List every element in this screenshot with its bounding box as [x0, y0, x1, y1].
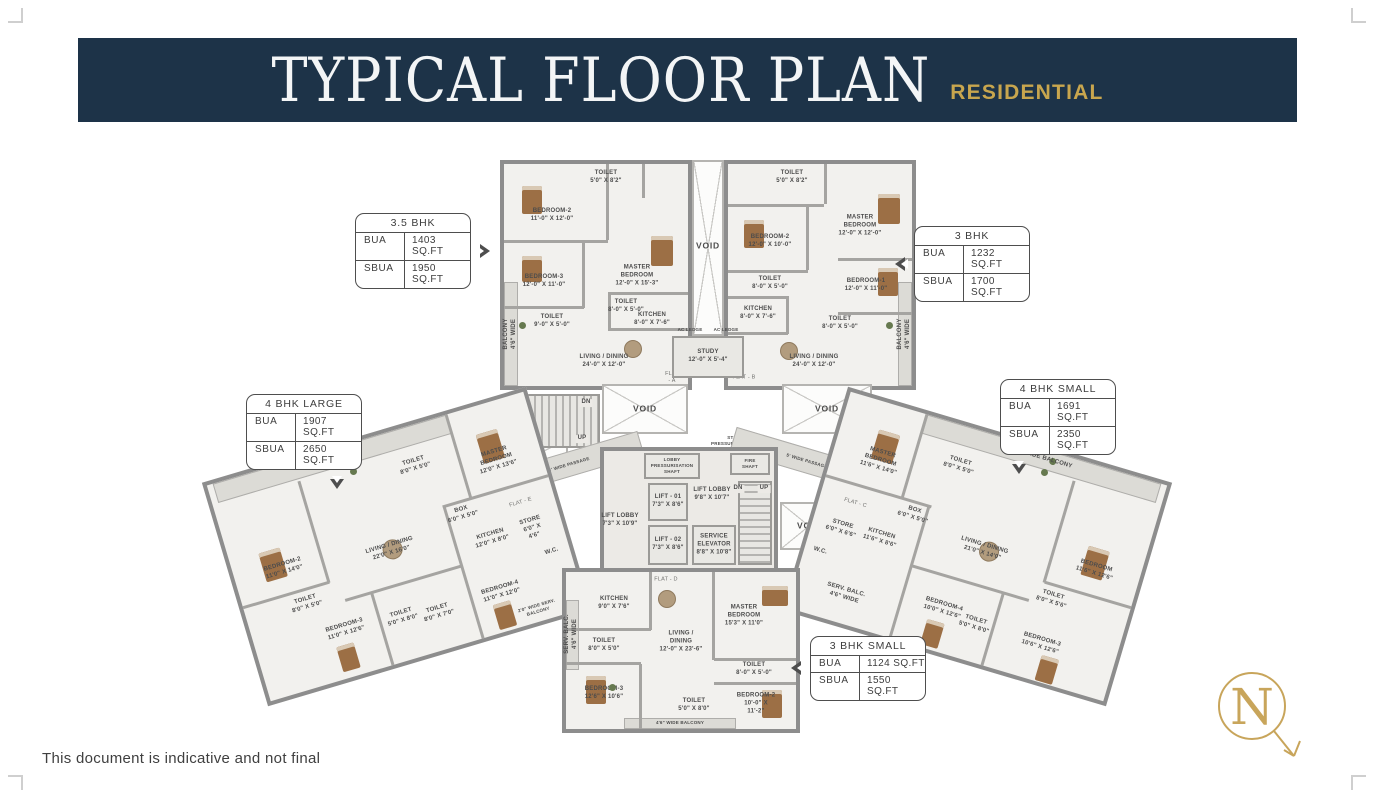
unit-type-title: 4 BHK LARGE: [247, 395, 361, 413]
room-label-master-bedroom: MASTER BEDROOM 12'-0" X 12'-0": [839, 214, 882, 237]
room-label-wc: W.C.: [812, 546, 827, 557]
partition-wall: [504, 240, 608, 243]
passage-label: 5' WIDE PASSAGE: [786, 452, 828, 470]
unit-type-title: 3 BHK: [915, 227, 1029, 245]
bua-row: BUA 1691 SQ.FT: [1001, 398, 1115, 426]
room-label-toilet: TOILET 9'-0" X 5'-0": [534, 314, 570, 330]
partition-wall: [712, 572, 715, 660]
crop-mark-top-right: [1351, 8, 1366, 23]
stair-up-label: UP: [576, 435, 589, 443]
partition-wall: [728, 204, 824, 207]
room-label-lift-lobby2: LIFT LOBBY 7'3" X 10'9": [601, 513, 638, 529]
sbua-label: SBUA: [811, 673, 860, 700]
crop-mark-bottom-left: [8, 775, 23, 790]
unit-type-title: 3.5 BHK: [356, 214, 470, 232]
room-label-toilet: TOILET 5'0" X 8'2": [776, 170, 807, 186]
crop-mark-bottom-right: [1351, 775, 1366, 790]
sbua-row: SBUA 1550 SQ.FT: [811, 672, 925, 700]
partition-wall: [582, 240, 585, 308]
room-label-bedroom2: BEDROOM-2 12'-0" X 10'-0": [749, 234, 792, 250]
room-label-bedroom4: BEDROOM-4 10'0" X 12'6": [922, 596, 963, 622]
room-label-kitchen: KITCHEN 12'0" X 8'0": [473, 526, 511, 551]
room-label-serv-balc: SERV. BALC. 4'6" WIDE: [564, 614, 580, 654]
sbua-value: 1950 SQ.FT: [405, 261, 470, 288]
room-label-toilet: TOILET 8'0" X 5'0": [397, 454, 432, 478]
partition-wall: [345, 564, 463, 601]
void-label: VOID: [696, 240, 720, 251]
sbua-label: SBUA: [915, 274, 964, 301]
unit-flat-b: TOILET 5'0" X 8'2" BEDROOM-2 12'-0" X 10…: [724, 160, 916, 390]
unit-type-title: 4 BHK SMALL: [1001, 380, 1115, 398]
central-core: LOBBY PRESSURISATION SHAFT LIFT - 01 7'3…: [600, 447, 778, 575]
bua-label: BUA: [1001, 399, 1050, 426]
sbua-label: SBUA: [1001, 427, 1050, 454]
room-label-master-bedroom: MASTER BEDROOM 15'3" X 11'0": [725, 604, 763, 627]
void-label: VOID: [633, 403, 657, 414]
room-label-store: STORE 6'0" X 6'6": [824, 517, 859, 541]
passage-label: 5' WIDE PASSAGE: [548, 456, 590, 474]
partition-wall: [445, 414, 472, 499]
room-label-kitchen: KITCHEN 9'0" X 7'6": [598, 596, 629, 612]
flat-tag: FLAT - D: [654, 576, 677, 583]
staircase-core: [738, 481, 772, 565]
furniture-table: [658, 590, 676, 608]
room-label-study: STUDY 12'-0" X 5'-4": [688, 349, 727, 365]
room-label-toilet: TOILET 8'-0" X 5'-0": [752, 276, 788, 292]
partition-wall: [824, 164, 827, 204]
partition-wall: [608, 292, 688, 295]
compass-needle: [1274, 731, 1300, 756]
unit-type-title: 3 BHK SMALL: [811, 637, 925, 655]
bua-row: BUA 1232 SQ.FT: [915, 245, 1029, 273]
room-label-toilet: TOILET 8'0" X 5'0": [588, 638, 619, 654]
sbua-label: SBUA: [356, 261, 405, 288]
partition-wall: [504, 306, 584, 309]
sbua-label: SBUA: [247, 442, 296, 469]
callout-3-bhk: 3 BHK BUA 1232 SQ.FT SBUA 1700 SQ.FT: [914, 226, 1030, 302]
room-label-balcony: 4'6" WIDE BALCONY: [656, 720, 704, 726]
bua-value: 1907 SQ.FT: [296, 414, 361, 441]
sbua-row: SBUA 1700 SQ.FT: [915, 273, 1029, 301]
room-label-toilet: TOILET 8'-0" X 5'-0": [822, 316, 858, 332]
room-label-serv-balc: SERV. BALC. 4'6" WIDE: [824, 581, 866, 607]
furniture-bed: [1035, 655, 1060, 685]
north-compass-logo: N: [1206, 650, 1316, 770]
room-label-bedroom1: BEDROOM-1 12'-0" X 11'-0": [845, 278, 888, 294]
sbua-row: SBUA 2350 SQ.FT: [1001, 426, 1115, 454]
sbua-row: SBUA 2650 SQ.FT: [247, 441, 361, 469]
room-label-balcony: BALCONY 4'6" WIDE: [503, 318, 519, 349]
partition-wall: [714, 682, 796, 685]
bua-value: 1691 SQ.FT: [1050, 399, 1115, 426]
furniture-bed: [336, 642, 361, 672]
partition-wall: [608, 328, 688, 331]
header-band: TYPICAL FLOOR PLAN RESIDENTIAL: [78, 38, 1297, 122]
room-label-bedroom3: BEDROOM-3 12'-0" X 11'-0": [523, 274, 566, 290]
partition-wall: [728, 270, 808, 273]
room-label-fire-shaft: FIRE SHAFT: [738, 458, 762, 470]
partition-wall: [786, 296, 789, 334]
flat-tag: FLAT - E: [509, 496, 533, 509]
furniture-bed: [651, 236, 673, 266]
plant: [609, 684, 616, 691]
room-label-kitchen: KITCHEN 11'6" X 8'6": [862, 526, 900, 551]
partition-wall: [826, 474, 932, 508]
sbua-value: 1550 SQ.FT: [860, 673, 925, 700]
partition-wall: [728, 296, 788, 299]
room-label-toilet: TOILET 8'0" X 5'6": [1035, 588, 1070, 612]
room-label-toilet: TOILET 8'0" X 5'0": [942, 454, 977, 478]
room-label-serv-balcony: 2'0" WIDE SERV. BALCONY: [513, 596, 562, 621]
callout-4-bhk-large: 4 BHK LARGE BUA 1907 SQ.FT SBUA 2650 SQ.…: [246, 394, 362, 470]
partition-wall: [838, 312, 912, 315]
page-title: TYPICAL FLOOR PLAN: [271, 45, 930, 116]
stair-dn-label: DN: [579, 399, 592, 407]
room-label-bedroom2: BEDROOM-2 11'-0" X 12'-0": [531, 208, 574, 224]
room-label-living-dining: LIVING / DINING 24'-0" X 12'-0": [579, 354, 628, 370]
room-label-wc: W.C.: [544, 547, 559, 558]
partition-wall: [642, 164, 645, 198]
flat-tag: FLAT - C: [843, 497, 867, 510]
compass-north-letter: N: [1230, 678, 1274, 736]
room-label-toilet: TOILET 5'0" X 8'0": [678, 698, 709, 714]
bua-label: BUA: [811, 656, 860, 672]
partition-wall: [714, 658, 796, 661]
room-label-kitchen: KITCHEN 8'-0" X 7'-6": [634, 312, 670, 328]
sbua-value: 2650 SQ.FT: [296, 442, 361, 469]
partition-wall: [901, 414, 928, 499]
room-label-lobby-shaft: LOBBY PRESSURISATION SHAFT: [651, 457, 693, 475]
callout-3-5-bhk: 3.5 BHK BUA 1403 SQ.FT SBUA 1950 SQ.FT: [355, 213, 471, 289]
bua-value: 1232 SQ.FT: [964, 246, 1029, 273]
void-label: VOID: [815, 403, 839, 414]
page-subtitle: RESIDENTIAL: [950, 81, 1103, 105]
room-label-toilet: TOILET 5'0" X 8'0": [385, 605, 420, 629]
room-label-store: STORE 6'0" X 4'6": [515, 513, 550, 544]
partition-wall: [649, 572, 652, 630]
room-label-toilet: TOILET 8'-0" X 5'-0": [736, 662, 772, 678]
callout-4-bhk-small: 4 BHK SMALL BUA 1691 SQ.FT SBUA 2350 SQ.…: [1000, 379, 1116, 455]
room-label-living-dining: LIVING / DINING 24'-0" X 12'-0": [789, 354, 838, 370]
partition-wall: [443, 507, 484, 639]
room-label-box: BOX 6'0" X 5'0": [445, 502, 480, 526]
sbua-value: 2350 SQ.FT: [1050, 427, 1115, 454]
stair-up-label: UP: [758, 485, 771, 493]
partition-wall: [370, 593, 394, 666]
plant: [519, 322, 526, 329]
ac-ledge-label: AC LEDGE: [714, 327, 739, 333]
unit-flat-d: FLAT - D KITCHEN 9'0" X 7'6" SERV. BALC.…: [562, 568, 800, 733]
bua-value: 1124 SQ.FT: [860, 656, 925, 672]
room-label-lift-lobby: LIFT LOBBY 9'8" X 10'7": [693, 487, 730, 503]
partition-wall: [1043, 480, 1076, 582]
bua-row: BUA 1124 SQ.FT: [811, 655, 925, 672]
plant: [886, 322, 893, 329]
room-label-bedroom2: BEDROOM-2 10'-0" X 11'-2": [736, 692, 776, 715]
room-label-living-dining: LIVING / DINING 12'-0" X 23'-6": [660, 630, 703, 653]
room-label-balcony: BALCONY 4'6" WIDE: [897, 318, 913, 349]
room-label-bedroom4: BEDROOM-4 11'0" X 12'0": [481, 579, 522, 605]
bua-label: BUA: [247, 414, 296, 441]
sbua-row: SBUA 1950 SQ.FT: [356, 260, 470, 288]
room-label-service-elevator: SERVICE ELEVATOR 8'8" X 10'8": [697, 533, 732, 556]
room-label-master-bedroom: MASTER BEDROOM 12'-0" X 15'-3": [616, 264, 659, 287]
room-label-kitchen: KITCHEN 8'-0" X 7'-6": [740, 306, 776, 322]
room-label-toilet: TOILET 8'0" X 7'0": [421, 601, 456, 625]
plant: [1041, 469, 1048, 476]
crop-mark-top-left: [8, 8, 23, 23]
room-label-toilet: TOILET 5'0" X 8'2": [590, 170, 621, 186]
bua-value: 1403 SQ.FT: [405, 233, 470, 260]
furniture-bed: [762, 586, 788, 606]
bua-label: BUA: [356, 233, 405, 260]
room-label-bedroom3: BEDROOM-3 11'0" X 12'6": [325, 617, 366, 643]
room-label-bedroom3: BEDROOM-3 12'6" X 10'6": [585, 686, 624, 702]
room-label-lift2: LIFT - 02 7'3" X 8'6": [652, 537, 683, 553]
bua-label: BUA: [915, 246, 964, 273]
ac-ledge-label: AC LEDGE: [678, 327, 703, 333]
floor-plan-page: TYPICAL FLOOR PLAN RESIDENTIAL TOILET 5'…: [0, 0, 1374, 798]
room-label-toilet: TOILET 5'0" X 8'0": [957, 613, 992, 637]
partition-wall: [566, 662, 641, 665]
bua-row: BUA 1907 SQ.FT: [247, 413, 361, 441]
unit-flat-a: TOILET 5'0" X 8'2" BEDROOM-2 11'-0" X 12…: [500, 160, 692, 390]
bua-row: BUA 1403 SQ.FT: [356, 232, 470, 260]
partition-wall: [639, 664, 642, 729]
sbua-value: 1700 SQ.FT: [964, 274, 1029, 301]
disclaimer-text: This document is indicative and not fina…: [42, 750, 320, 767]
partition-wall: [806, 204, 809, 270]
room-label-lift1: LIFT - 01 7'3" X 8'6": [652, 494, 683, 510]
room-label-bedroom3: BEDROOM-3 10'6" X 12'6": [1020, 631, 1061, 657]
room-label-toilet: TOILET 8'0" X 5'0": [289, 592, 324, 616]
room-label-bedroom: BEDROOM 11'6" X 12'6": [1075, 558, 1116, 584]
stair-dn-label: DN: [731, 485, 744, 493]
callout-3-bhk-small: 3 BHK SMALL BUA 1124 SQ.FT SBUA 1550 SQ.…: [810, 636, 926, 701]
